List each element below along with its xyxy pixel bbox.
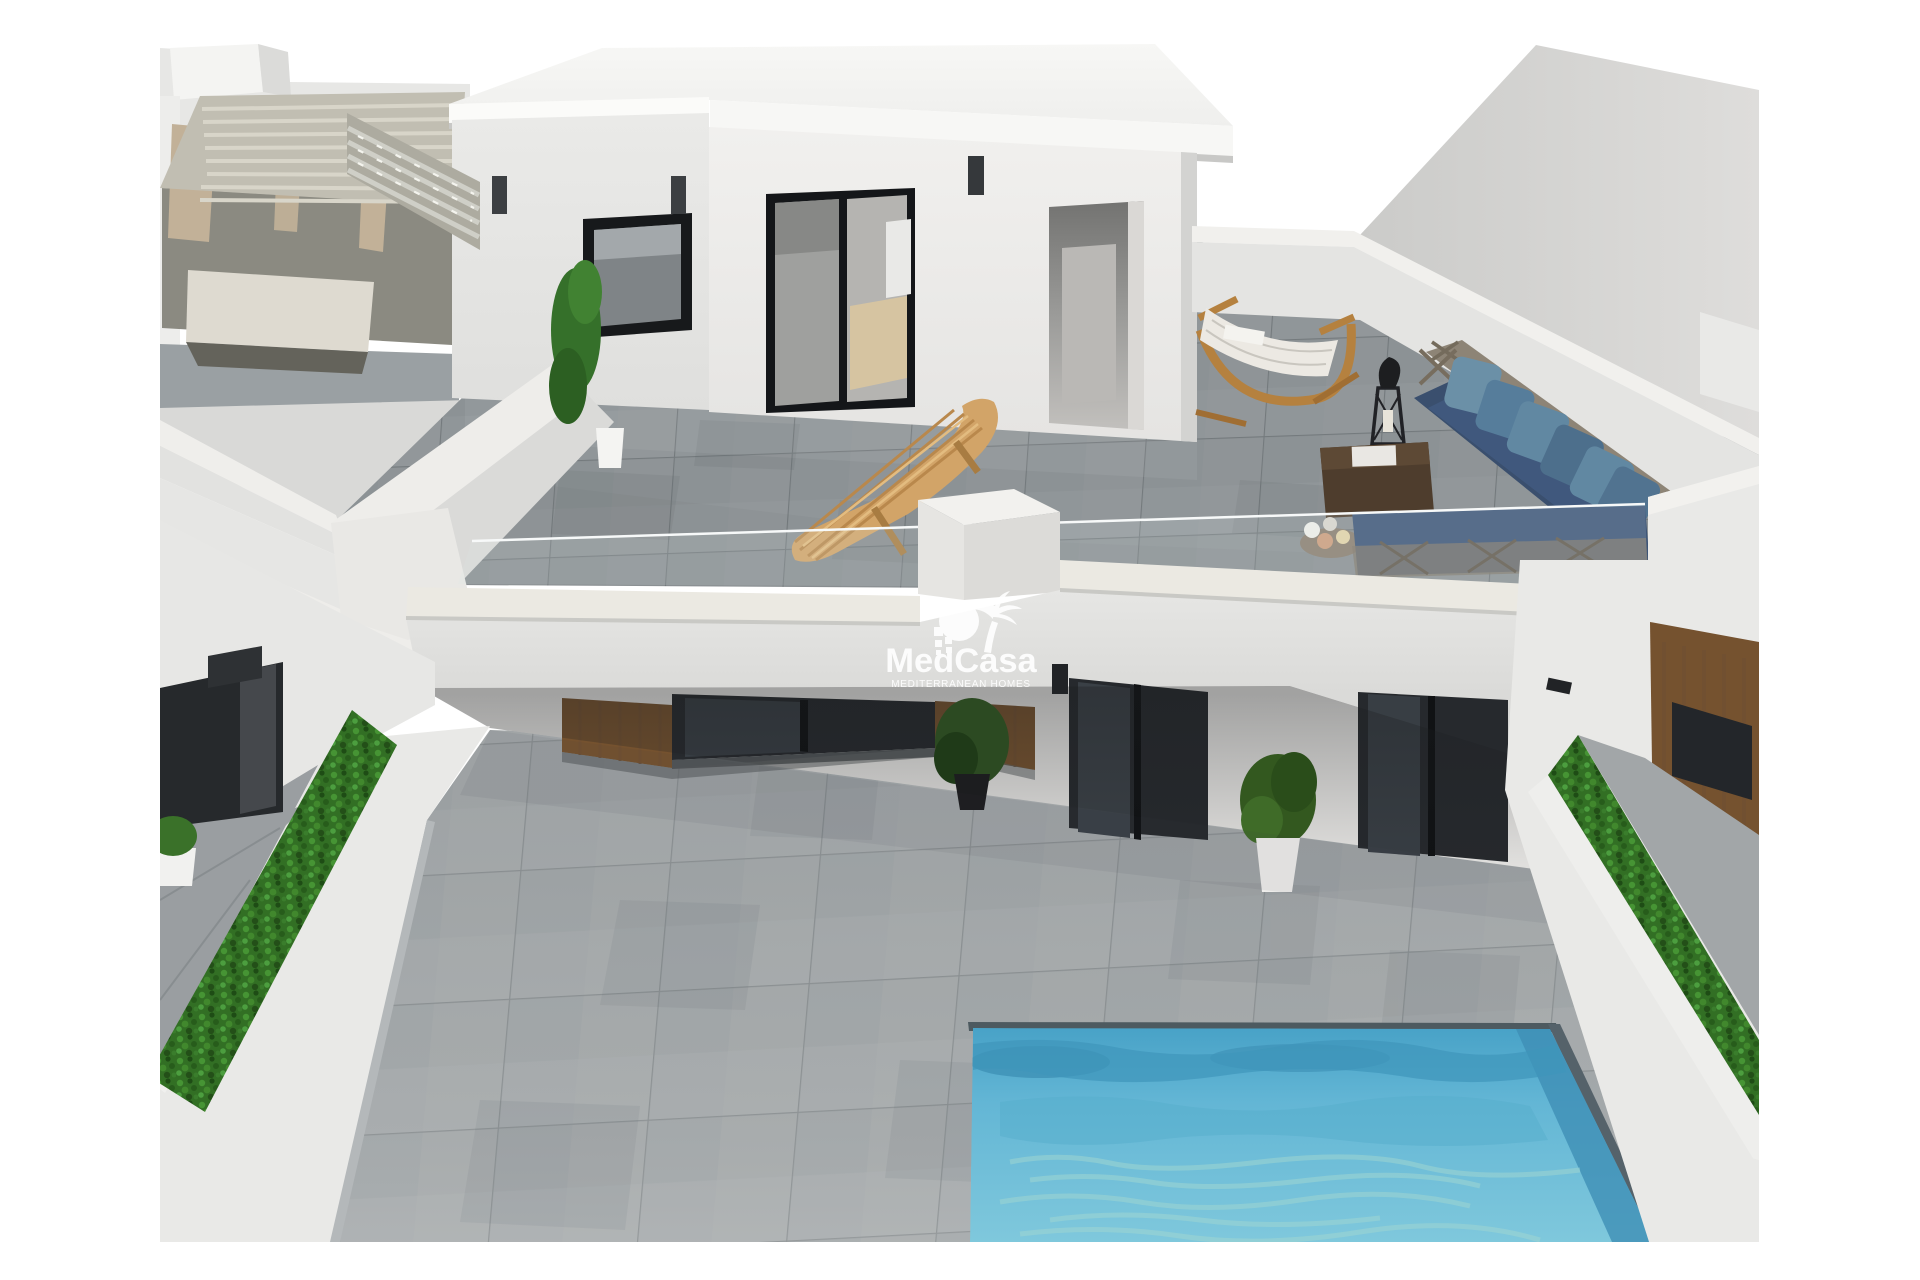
svg-text:MedCasa: MedCasa: [885, 642, 1037, 680]
svg-text:MEDITERRANEAN HOMES: MEDITERRANEAN HOMES: [891, 679, 1030, 690]
